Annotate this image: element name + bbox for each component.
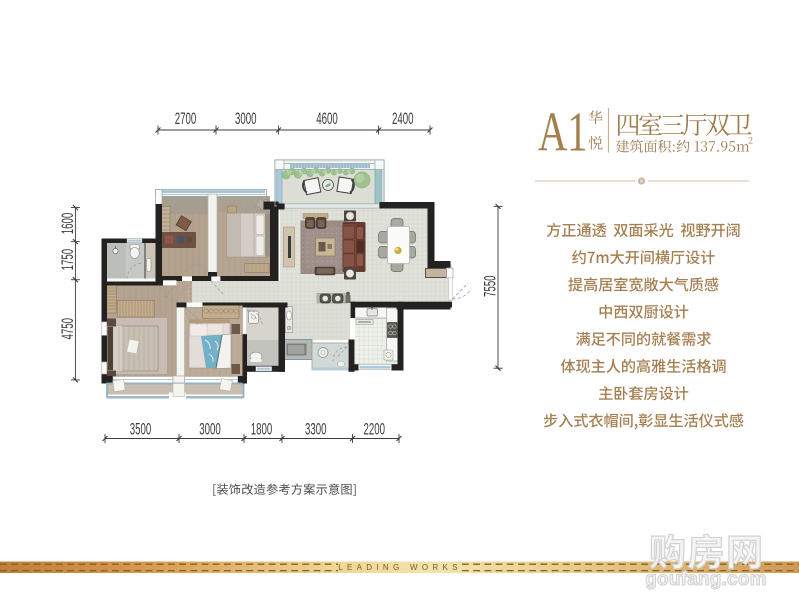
svg-text:1750: 1750	[59, 249, 77, 271]
svg-text:3000: 3000	[235, 110, 257, 128]
svg-text:2400: 2400	[392, 110, 414, 128]
svg-text:3300: 3300	[305, 421, 327, 439]
svg-text:3500: 3500	[130, 421, 152, 439]
svg-text:2200: 2200	[363, 421, 385, 439]
svg-text:1600: 1600	[59, 213, 77, 235]
svg-text:2700: 2700	[175, 110, 197, 128]
svg-text:7550: 7550	[482, 276, 500, 298]
svg-text:3000: 3000	[199, 421, 221, 439]
svg-text:1800: 1800	[251, 421, 273, 439]
svg-text:LEADING WORKS: LEADING WORKS	[338, 563, 461, 572]
svg-text:4750: 4750	[59, 318, 77, 340]
svg-text:A1: A1	[538, 102, 588, 164]
svg-text:4600: 4600	[316, 110, 338, 128]
svg-text:goufang.com: goufang.com	[645, 569, 766, 590]
